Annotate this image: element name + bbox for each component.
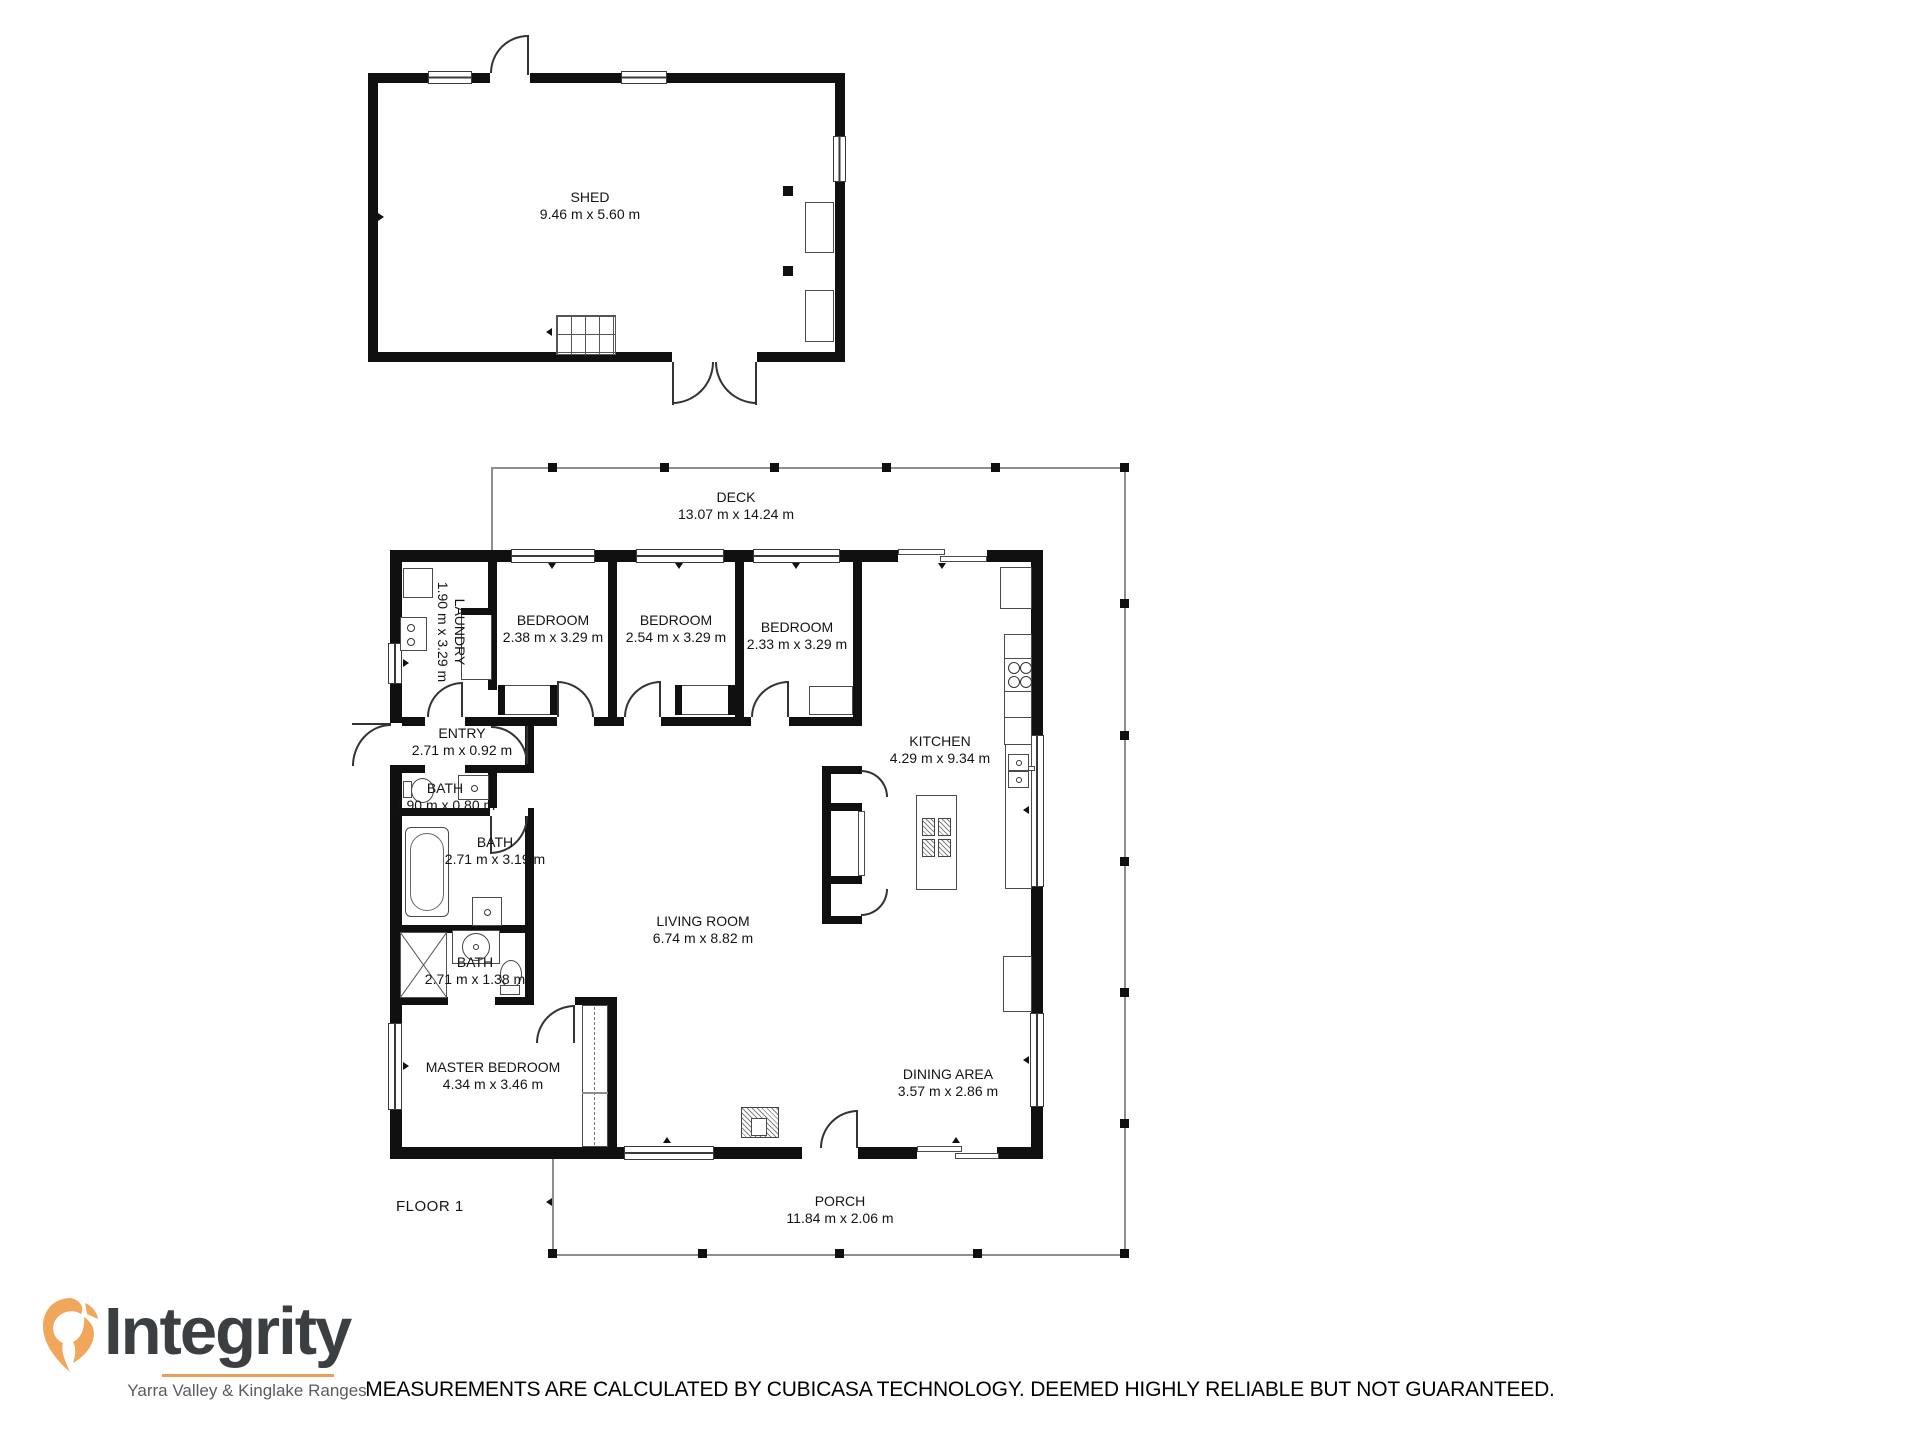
closet <box>675 685 735 715</box>
porch-edge <box>552 1157 554 1255</box>
room-name: MASTER BEDROOM <box>426 1059 561 1076</box>
wall <box>757 352 845 362</box>
door-leaf <box>526 726 528 764</box>
wall <box>368 352 672 362</box>
room-dims: 13.07 m x 14.24 m <box>678 506 794 523</box>
room-label-bath-small: BATH 1.90 m x 0.80 m <box>395 780 495 814</box>
deck-post <box>1120 599 1129 608</box>
wardrobe-rail <box>594 1007 595 1145</box>
direction-arrow <box>546 328 552 336</box>
window <box>388 1023 402 1110</box>
room-dims: 2.33 m x 3.29 m <box>747 636 847 653</box>
door-arc <box>751 681 789 717</box>
room-label-living: LIVING ROOM 6.74 m x 8.82 m <box>653 913 753 947</box>
deck-post <box>1120 988 1129 997</box>
wall <box>722 550 755 562</box>
wall <box>470 73 490 83</box>
master-wardrobe <box>582 1005 608 1147</box>
direction-arrow <box>403 659 409 667</box>
brand-name: Integrity <box>104 1293 350 1370</box>
drain <box>1016 777 1022 783</box>
porch-post <box>835 1249 844 1258</box>
room-name: KITCHEN <box>890 733 990 750</box>
wall <box>575 997 617 1005</box>
window <box>753 549 840 563</box>
room-dims: 2.38 m x 3.29 m <box>503 629 603 646</box>
direction-arrow <box>938 563 946 569</box>
sliding-panel <box>858 811 865 876</box>
wall <box>712 1147 802 1159</box>
room-name: SHED <box>540 189 640 206</box>
sliding-door-panel <box>917 1146 962 1152</box>
wall <box>822 876 862 884</box>
room-dims: 4.34 m x 3.46 m <box>426 1076 561 1093</box>
deck-post <box>1120 1249 1129 1258</box>
room-label-kitchen: KITCHEN 4.29 m x 9.34 m <box>890 733 990 767</box>
drain <box>484 909 491 916</box>
wall <box>528 808 534 816</box>
window <box>1030 1013 1044 1107</box>
washing-machine <box>400 617 427 651</box>
laundry-sink <box>403 568 433 598</box>
direction-arrow <box>548 563 556 569</box>
door-leaf <box>672 362 674 405</box>
room-label-deck: DECK 13.07 m x 14.24 m <box>678 489 794 523</box>
door-leaf <box>557 681 559 717</box>
wall <box>593 550 638 562</box>
wall <box>525 933 534 1005</box>
wall <box>735 562 744 726</box>
drain <box>473 944 479 950</box>
deck-post <box>1120 1119 1129 1128</box>
direction-arrow <box>952 1137 960 1143</box>
closet-cap <box>498 685 505 715</box>
wall <box>822 766 831 924</box>
lion-icon <box>40 1296 102 1374</box>
porch-post <box>548 1249 557 1258</box>
wall <box>822 803 862 811</box>
room-label-bedroom3: BEDROOM 2.33 m x 3.29 m <box>747 619 847 653</box>
deck-post <box>770 463 779 472</box>
room-label-porch: PORCH 11.84 m x 2.06 m <box>786 1193 893 1227</box>
door-leaf <box>527 35 529 75</box>
wall <box>390 550 513 562</box>
direction-arrow <box>1023 806 1029 814</box>
closet-cap <box>728 685 735 715</box>
wall <box>858 1147 917 1159</box>
door-leaf <box>659 681 661 717</box>
wall <box>608 1005 617 1147</box>
room-label-bedroom2: BEDROOM 2.54 m x 3.29 m <box>626 612 726 646</box>
room-name: BEDROOM <box>626 612 726 629</box>
window <box>428 71 472 84</box>
island-cooktop <box>922 818 935 836</box>
direction-arrow <box>792 563 800 569</box>
disclaimer-text: MEASUREMENTS ARE CALCULATED BY CUBICASA … <box>0 1378 1920 1402</box>
door-arc <box>536 1005 575 1043</box>
wall <box>465 765 534 773</box>
workbench <box>805 202 834 253</box>
floorplan-page: SHED 9.46 m x 5.60 m DECK 13.07 m x 14.2… <box>0 0 1920 1440</box>
wall <box>665 73 845 83</box>
door-arc <box>352 724 391 766</box>
window <box>621 71 667 84</box>
wall <box>390 1147 626 1159</box>
closet <box>809 686 853 715</box>
room-label-entry: ENTRY 2.71 m x 0.92 m <box>412 725 512 759</box>
knob <box>407 638 415 646</box>
burner <box>1020 676 1032 688</box>
deck-post <box>660 463 669 472</box>
door-leaf <box>755 362 757 405</box>
direction-arrow <box>546 1198 552 1206</box>
kitchen-counter <box>1004 691 1032 718</box>
brand-underline <box>162 1374 334 1377</box>
room-name: DECK <box>678 489 794 506</box>
room-dims: 11.84 m x 2.06 m <box>786 1210 893 1227</box>
post <box>783 266 793 276</box>
room-dims: 1.90 m x 0.80 m <box>395 797 495 814</box>
direction-arrow <box>378 213 384 221</box>
window <box>636 549 724 563</box>
kitchen-counter <box>1004 634 1032 659</box>
room-name: BATH <box>395 780 495 797</box>
room-dims: 2.71 m x 1.38 m <box>425 971 525 988</box>
deck-post <box>548 463 557 472</box>
kitchen-counter <box>1004 717 1032 745</box>
drain <box>1016 760 1022 766</box>
door-arc <box>490 35 528 73</box>
wall <box>822 916 862 924</box>
stairs <box>556 315 616 355</box>
room-label-bedroom1: BEDROOM 2.38 m x 3.29 m <box>503 612 603 646</box>
wall <box>1031 885 1043 1015</box>
room-label-bath-ensuite: BATH 2.71 m x 1.38 m <box>425 954 525 988</box>
wall <box>390 682 402 723</box>
workbench <box>805 290 834 342</box>
door-arc <box>820 1110 858 1148</box>
burner <box>1020 662 1032 674</box>
wall <box>368 73 378 362</box>
room-name: PORCH <box>786 1193 893 1210</box>
wall <box>608 562 617 726</box>
room-name: LIVING ROOM <box>653 913 753 930</box>
door-arc <box>715 362 757 404</box>
room-label-master: MASTER BEDROOM 4.34 m x 3.46 m <box>426 1059 561 1093</box>
bathtub-basin <box>410 833 444 911</box>
wall <box>1031 1105 1043 1159</box>
door-arc <box>672 362 714 404</box>
deck-post <box>882 463 891 472</box>
post <box>783 186 793 196</box>
room-dims: 2.71 m x 3.19 m <box>445 851 545 868</box>
tap <box>1028 766 1035 771</box>
door-leaf <box>461 682 463 717</box>
room-name: DINING AREA <box>898 1066 998 1083</box>
direction-arrow <box>663 1137 671 1143</box>
door-leaf <box>787 681 789 717</box>
wall <box>402 765 425 773</box>
sliding-door-panel <box>940 556 987 562</box>
deck-edge <box>491 467 493 550</box>
deck-post <box>1120 857 1129 866</box>
island-cooktop <box>922 839 935 857</box>
door-arc <box>557 681 594 717</box>
room-label-laundry: LAUNDRY 1.90 m x 3.29 m <box>434 582 468 682</box>
burner <box>1008 676 1020 688</box>
wardrobe-shelf <box>582 1092 608 1094</box>
island-cooktop <box>938 839 951 857</box>
room-name: LAUNDRY <box>451 582 468 682</box>
door-arc <box>427 682 463 717</box>
deck-edge <box>491 467 1125 469</box>
closet-cap <box>550 685 557 715</box>
floor-label: FLOOR 1 <box>396 1198 464 1215</box>
room-name: BEDROOM <box>747 619 847 636</box>
wall <box>530 73 623 83</box>
room-name: BATH <box>425 954 525 971</box>
door-leaf <box>352 723 391 725</box>
window <box>511 549 595 563</box>
wall <box>835 180 845 362</box>
wall <box>853 562 862 726</box>
wall <box>525 816 534 929</box>
sliding-door-panel <box>898 549 945 555</box>
room-dims: 6.74 m x 8.82 m <box>653 930 753 947</box>
sliding-door-panel <box>955 1153 999 1159</box>
room-label-shed: SHED 9.46 m x 5.60 m <box>540 189 640 223</box>
wall <box>789 717 862 726</box>
room-dims: 3.57 m x 2.86 m <box>898 1083 998 1100</box>
room-dims: 2.54 m x 3.29 m <box>626 629 726 646</box>
wall <box>402 997 448 1005</box>
porch-post <box>973 1249 982 1258</box>
direction-arrow <box>1023 1056 1029 1064</box>
closet <box>498 685 557 715</box>
room-name: BATH <box>445 834 545 851</box>
island-cooktop <box>938 818 951 836</box>
wall <box>835 73 845 138</box>
room-name: ENTRY <box>412 725 512 742</box>
door-arc <box>624 681 661 717</box>
room-dims: 1.90 m x 3.29 m <box>434 582 451 682</box>
window <box>624 1146 714 1160</box>
deck-post <box>1120 463 1129 472</box>
window <box>833 136 846 182</box>
deck-post <box>991 463 1000 472</box>
door-leaf <box>573 1005 575 1043</box>
direction-arrow <box>403 1062 409 1070</box>
room-label-bath-main: BATH 2.71 m x 3.19 m <box>445 834 545 868</box>
wall <box>838 550 898 562</box>
fireplace-insert <box>751 1118 767 1136</box>
burner <box>1008 662 1020 674</box>
closet-cap <box>675 685 682 715</box>
wall <box>822 766 862 774</box>
room-name: BEDROOM <box>503 612 603 629</box>
room-dims: 9.46 m x 5.60 m <box>540 206 640 223</box>
wall <box>1031 550 1043 737</box>
room-label-dining: DINING AREA 3.57 m x 2.86 m <box>898 1066 998 1100</box>
room-dims: 2.71 m x 0.92 m <box>412 742 512 759</box>
door-arc <box>861 770 888 797</box>
door-leaf <box>856 1110 858 1148</box>
room-dims: 4.29 m x 9.34 m <box>890 750 990 767</box>
kitchen-counter <box>1003 956 1032 1012</box>
window <box>1030 735 1044 887</box>
deck-post <box>1120 731 1129 740</box>
porch-post <box>698 1249 707 1258</box>
door-arc <box>861 889 888 916</box>
wall <box>495 997 533 1005</box>
direction-arrow <box>675 563 683 569</box>
fridge <box>1000 567 1032 609</box>
knob <box>407 624 415 632</box>
